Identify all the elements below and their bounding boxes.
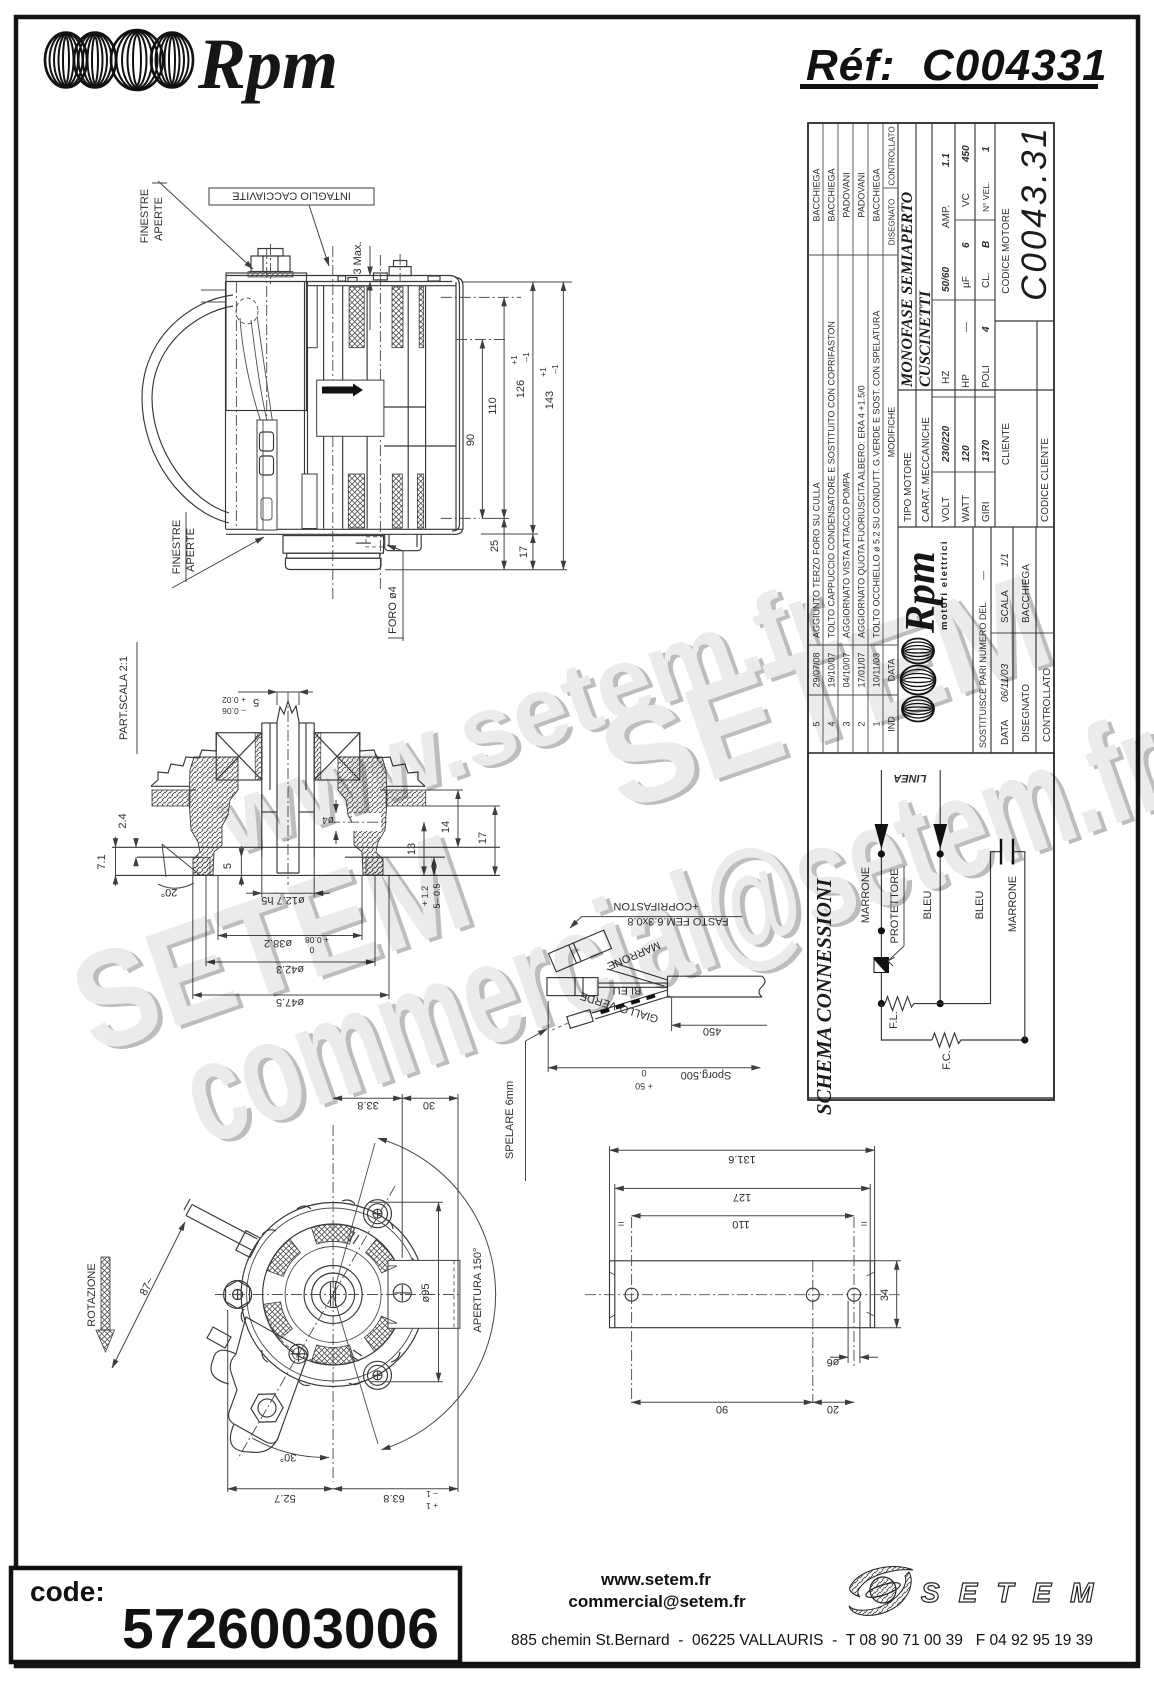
svg-text:APERTE: APERTE xyxy=(153,197,165,241)
svg-text:ø6: ø6 xyxy=(827,1356,840,1368)
svg-text:HZ: HZ xyxy=(941,371,952,384)
svg-text:131.6: 131.6 xyxy=(728,1153,756,1165)
svg-text:885 chemin St.Bernard - 0622: 885 chemin St.Bernard - 06225 VALLAURIS … xyxy=(511,1632,1093,1649)
svg-text:143: 143 xyxy=(544,391,556,409)
svg-text:GIRI: GIRI xyxy=(981,501,992,522)
svg-text:PADOVANI: PADOVANI xyxy=(842,172,852,217)
svg-text:17: 17 xyxy=(477,832,489,844)
svg-text:commercial@setem.fr: commercial@setem.fr xyxy=(568,1592,746,1611)
svg-text:25: 25 xyxy=(489,540,501,552)
svg-text:5: 5 xyxy=(222,863,234,869)
svg-text:FINESTRE: FINESTRE xyxy=(171,520,183,574)
svg-text:MONOFASE SEMIAPERTO: MONOFASE SEMIAPERTO xyxy=(899,191,916,388)
svg-text:CARAT. MECCANICHE: CARAT. MECCANICHE xyxy=(921,417,932,522)
svg-text:110: 110 xyxy=(732,1218,750,1230)
svg-text:CL.: CL. xyxy=(981,272,992,288)
svg-text:BACCHIEGA: BACCHIEGA xyxy=(827,168,837,221)
svg-text:DISEGNATO: DISEGNATO xyxy=(888,199,897,245)
svg-text:90: 90 xyxy=(465,434,477,446)
svg-text:3 Max.: 3 Max. xyxy=(352,241,364,274)
svg-text:µF: µF xyxy=(961,276,972,288)
svg-text:17: 17 xyxy=(518,546,530,558)
svg-text:FORO ø4: FORO ø4 xyxy=(387,586,399,634)
svg-text:230/220: 230/220 xyxy=(941,425,952,463)
svg-text:450: 450 xyxy=(961,145,972,163)
svg-text:Réf: C004331: Réf: C004331 xyxy=(806,41,1108,90)
svg-text:CODICE CLIENTE: CODICE CLIENTE xyxy=(1040,438,1051,522)
svg-text:TIPO MOTORE: TIPO MOTORE xyxy=(903,452,914,522)
svg-text:N° VEL.: N° VEL. xyxy=(981,182,991,212)
svg-text:50/60: 50/60 xyxy=(941,267,952,292)
svg-text:2.4: 2.4 xyxy=(117,813,129,828)
svg-text:AMP.: AMP. xyxy=(941,205,952,228)
svg-text:90: 90 xyxy=(716,1403,728,1415)
svg-text:TOLTO CAPPUCCIO CONDENSATORE E: TOLTO CAPPUCCIO CONDENSATORE E SOSTITUIT… xyxy=(827,321,837,638)
svg-text:+ 0.02: + 0.02 xyxy=(222,695,246,705)
svg-text:20: 20 xyxy=(827,1403,839,1415)
svg-text:code:: code: xyxy=(30,1576,105,1607)
svg-text:=: = xyxy=(618,1217,624,1229)
svg-text:=: = xyxy=(861,1217,867,1229)
svg-text:87~: 87~ xyxy=(138,1276,157,1298)
svg-text:Sporg.500: Sporg.500 xyxy=(681,1069,732,1081)
svg-text:6: 6 xyxy=(961,242,972,248)
svg-text:1.1: 1.1 xyxy=(941,153,952,167)
svg-text:110: 110 xyxy=(487,397,499,415)
svg-text:MODIFICHE: MODIFICHE xyxy=(887,407,897,458)
svg-text:C0043.31: C0043.31 xyxy=(1015,125,1054,301)
svg-text:PADOVANI: PADOVANI xyxy=(857,172,867,217)
svg-text:4: 4 xyxy=(981,326,992,333)
svg-text:B: B xyxy=(981,241,992,248)
svg-text:Rpm: Rpm xyxy=(197,24,338,104)
svg-text:ROTAZIONE: ROTAZIONE xyxy=(86,1263,98,1326)
svg-text:– 1: – 1 xyxy=(426,1489,438,1499)
svg-text:120: 120 xyxy=(961,445,972,462)
svg-text:APERTURA 150°: APERTURA 150° xyxy=(472,1248,484,1333)
svg-text:30°: 30° xyxy=(280,1451,297,1463)
svg-text:450: 450 xyxy=(703,1025,721,1037)
svg-text:BACCHIEGA: BACCHIEGA xyxy=(812,168,822,221)
svg-text:FINESTRE: FINESTRE xyxy=(139,189,151,243)
svg-text:0: 0 xyxy=(641,1068,646,1078)
svg-text:CONTROLLATO: CONTROLLATO xyxy=(888,126,897,185)
svg-text:7.1: 7.1 xyxy=(96,854,108,869)
svg-text:ø95: ø95 xyxy=(420,1284,432,1303)
svg-text:VOLT: VOLT xyxy=(941,497,952,522)
svg-text:127: 127 xyxy=(733,1191,751,1203)
svg-text:–1: –1 xyxy=(521,352,531,362)
svg-text:52.7: 52.7 xyxy=(274,1492,295,1504)
svg-text:VC: VC xyxy=(961,193,972,207)
svg-text:+ 50: + 50 xyxy=(635,1081,653,1091)
svg-text:–1: –1 xyxy=(550,364,560,374)
svg-text:F.C.: F.C. xyxy=(941,1050,953,1070)
svg-text:HP: HP xyxy=(961,374,972,388)
svg-text:– 0.06: – 0.06 xyxy=(222,706,246,716)
svg-text:5: 5 xyxy=(253,696,259,708)
svg-text:+ 1: + 1 xyxy=(426,1501,438,1511)
svg-text:F.L.: F.L. xyxy=(888,1011,900,1029)
svg-text:APERTE: APERTE xyxy=(185,528,197,572)
svg-text:+1: +1 xyxy=(509,355,519,365)
svg-text:CLIENTE: CLIENTE xyxy=(1001,423,1012,466)
svg-text:63.8: 63.8 xyxy=(383,1492,404,1504)
svg-text:—: — xyxy=(961,322,972,332)
svg-text:www.setem.fr: www.setem.fr xyxy=(600,1570,711,1589)
svg-text:CODICE MOTORE: CODICE MOTORE xyxy=(1001,208,1012,294)
svg-text:+1: +1 xyxy=(538,367,548,377)
svg-text:126: 126 xyxy=(515,380,527,398)
svg-text:TOLTO OCCHIELLO ø 5.2 SU CONDU: TOLTO OCCHIELLO ø 5.2 SU CONDUTT. G.VERD… xyxy=(872,311,882,638)
svg-text:BACCHIEGA: BACCHIEGA xyxy=(872,168,882,221)
svg-text:SPELARE 6mm: SPELARE 6mm xyxy=(504,1081,516,1159)
svg-text:PART.SCALA 2:1: PART.SCALA 2:1 xyxy=(118,656,130,740)
svg-text:5726003006: 5726003006 xyxy=(122,1597,439,1661)
svg-text:POLI: POLI xyxy=(981,365,992,388)
svg-text:INTAGLIO CACCIAVITE: INTAGLIO CACCIAVITE xyxy=(232,190,351,202)
svg-text:1370: 1370 xyxy=(981,439,992,462)
svg-text:WATT: WATT xyxy=(961,495,972,522)
svg-text:SETEM: SETEM xyxy=(921,1577,1112,1608)
svg-text:1: 1 xyxy=(981,146,992,152)
svg-text:34: 34 xyxy=(879,1289,891,1301)
